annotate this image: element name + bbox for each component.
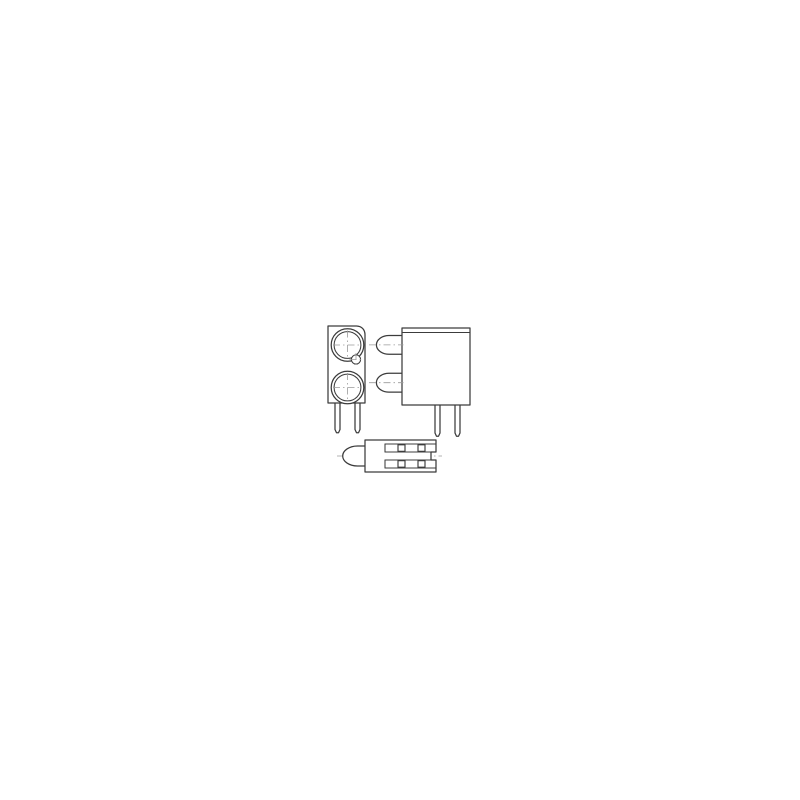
lead-cross-section-2: [418, 445, 425, 452]
lead-cross-section-1: [398, 445, 405, 452]
side-lead-left-pin: [435, 405, 440, 436]
front-lead-left-pin: [335, 403, 340, 433]
front-view: [328, 326, 365, 433]
side-lead-right-pin: [455, 405, 460, 436]
lead-cross-section-4: [418, 461, 425, 468]
lead-cross-section-3: [398, 461, 405, 468]
bottom-dome-lens: [343, 446, 365, 466]
side-view: [376, 328, 470, 436]
side-housing-body: [402, 328, 470, 405]
drawing-canvas: [0, 0, 800, 800]
front-lead-right-pin: [355, 403, 360, 433]
bottom-view: [343, 440, 436, 472]
technical-drawing: [0, 0, 800, 800]
